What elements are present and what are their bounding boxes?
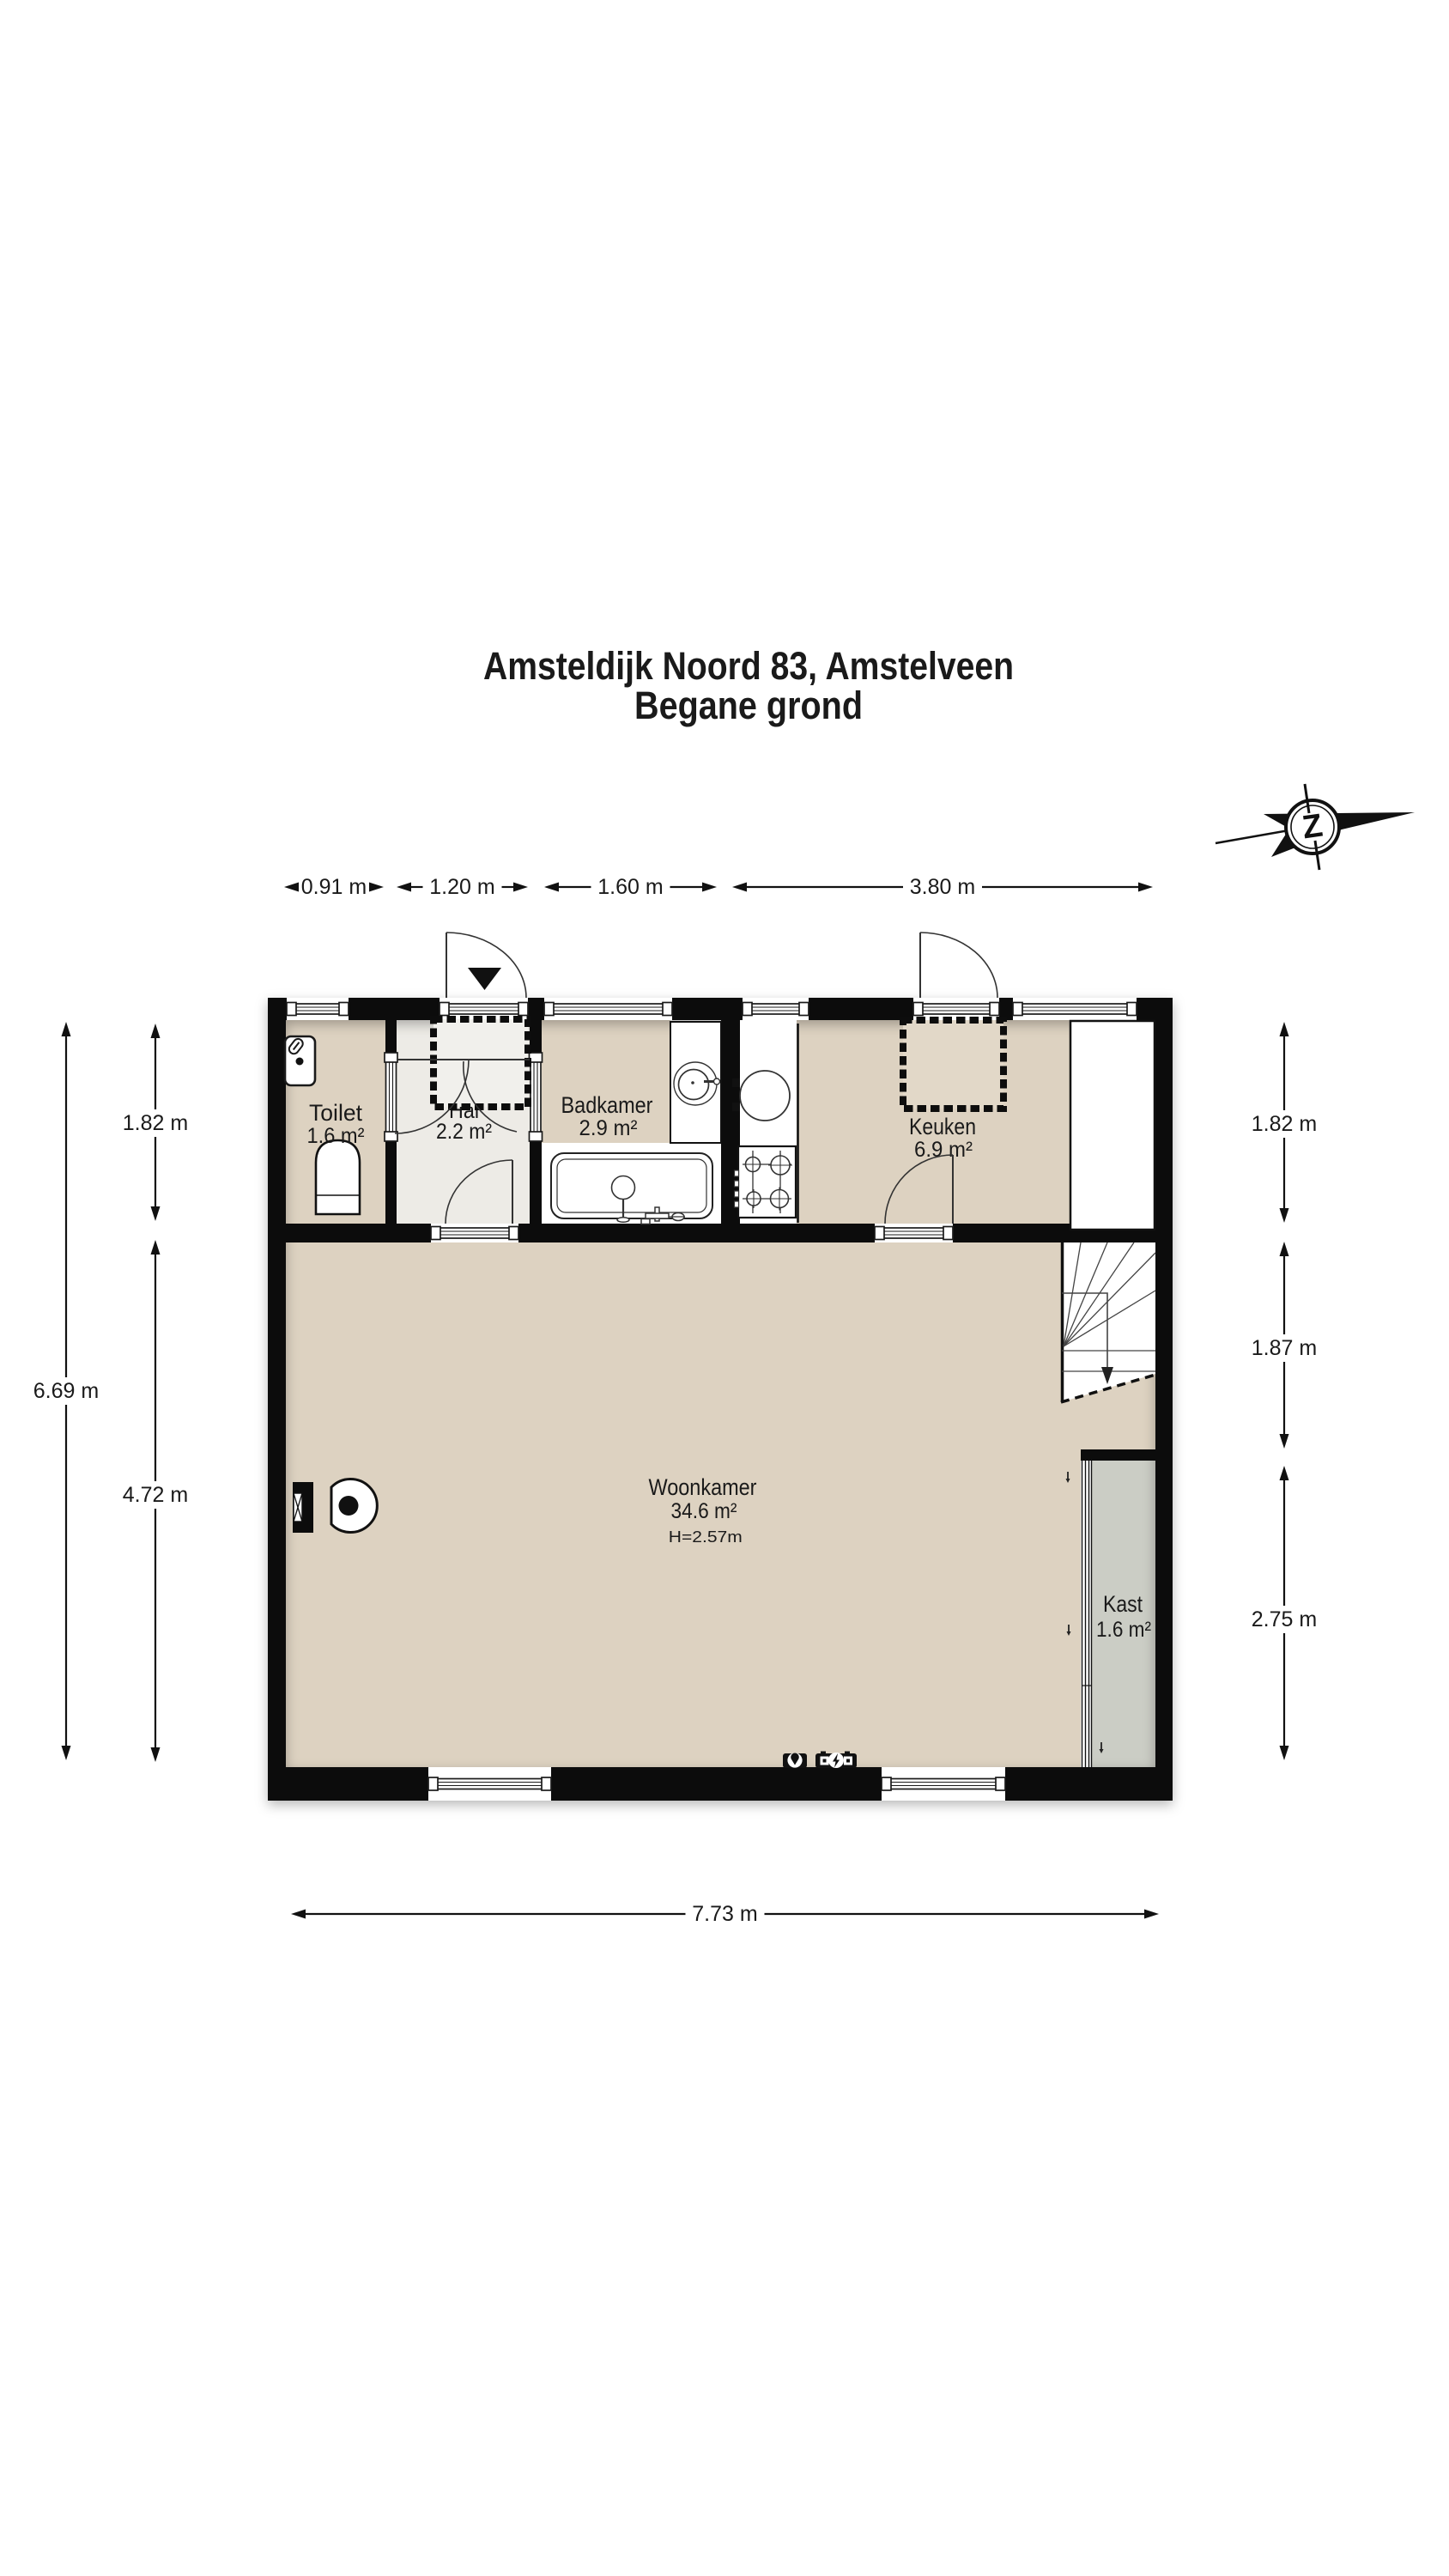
svg-text:1.6 m²: 1.6 m² [307, 1124, 365, 1148]
svg-text:7.73 m: 7.73 m [692, 1902, 757, 1926]
svg-text:Begane grond: Begane grond [634, 683, 863, 727]
svg-text:1.6 m²: 1.6 m² [1096, 1618, 1151, 1642]
svg-text:Badkamer: Badkamer [561, 1092, 653, 1118]
svg-text:4.72 m: 4.72 m [123, 1483, 188, 1507]
svg-text:2.75 m: 2.75 m [1252, 1607, 1317, 1631]
svg-text:2.2 m²: 2.2 m² [436, 1120, 492, 1144]
svg-text:34.6 m²: 34.6 m² [671, 1499, 737, 1523]
svg-text:Keuken: Keuken [909, 1114, 976, 1139]
svg-text:Amsteldijk Noord 83, Amstelvee: Amsteldijk Noord 83, Amstelveen [483, 644, 1014, 688]
svg-text:Kast: Kast [1103, 1591, 1143, 1617]
svg-text:1.82 m: 1.82 m [123, 1111, 188, 1135]
svg-text:1.60 m: 1.60 m [597, 875, 663, 899]
svg-text:6.9 m²: 6.9 m² [914, 1138, 973, 1162]
svg-text:1.20 m: 1.20 m [429, 875, 494, 899]
svg-text:Woonkamer: Woonkamer [649, 1474, 757, 1500]
svg-text:3.80 m: 3.80 m [910, 875, 975, 899]
svg-text:0.91 m: 0.91 m [301, 875, 367, 899]
svg-text:1.87 m: 1.87 m [1252, 1336, 1317, 1360]
svg-text:2.9 m²: 2.9 m² [579, 1116, 638, 1140]
svg-text:Toilet: Toilet [309, 1100, 362, 1126]
svg-text:1.82 m: 1.82 m [1252, 1112, 1317, 1136]
svg-text:6.69 m: 6.69 m [33, 1379, 99, 1403]
svg-text:H=2.57m: H=2.57m [669, 1528, 743, 1546]
